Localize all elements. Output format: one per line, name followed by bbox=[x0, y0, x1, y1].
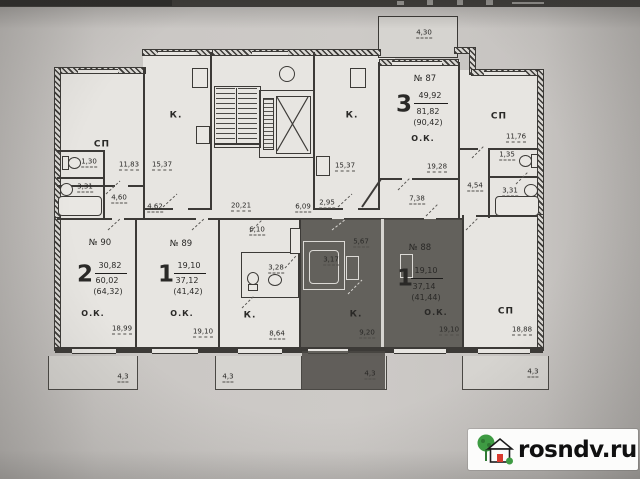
top-glyph-1 bbox=[397, 1, 404, 5]
area-ok87: 19,28 bbox=[427, 164, 447, 173]
area-bath87: 3,31 bbox=[502, 188, 518, 197]
apt90-rooms-count: 2 bbox=[77, 264, 93, 287]
room-label-sp87: СП bbox=[491, 113, 507, 122]
top-glyph-2 bbox=[427, 0, 433, 5]
top-glyph-3 bbox=[457, 0, 463, 5]
area-wc87: 1,35 bbox=[499, 152, 515, 161]
area-balcony-top: 4,30 bbox=[416, 30, 432, 39]
area-bath90: 3,31 bbox=[77, 184, 93, 193]
watermark-text: rosndv.ru bbox=[518, 437, 637, 463]
watermark: rosndv.ru bbox=[468, 429, 638, 470]
room-label-k89: К. bbox=[244, 312, 257, 321]
apt89-ok-label: О.К. bbox=[170, 310, 193, 318]
apt87-rooms-count: 3 bbox=[396, 94, 412, 117]
area-bath88: 3,17 bbox=[323, 257, 339, 266]
area-balcony-87: 4,3 bbox=[527, 369, 538, 378]
apt90-total-area: 60,02 bbox=[96, 277, 119, 285]
area-ok90: 18,99 bbox=[112, 326, 132, 335]
floorplan-photo: СП 11,83 1,30 3,31 4,60 4,62 К. 15,37 20… bbox=[0, 0, 640, 479]
area-sp90: 11,83 bbox=[119, 162, 139, 171]
apt87-fraction-bar bbox=[414, 103, 448, 104]
area-balcony-89: 4,3 bbox=[222, 374, 233, 383]
area-sp87: 11,76 bbox=[506, 134, 526, 143]
house-door-icon bbox=[497, 454, 503, 462]
area-hall87b: 7,38 bbox=[409, 196, 425, 205]
apt88-area-with-balcony: (41,44) bbox=[411, 294, 440, 302]
area-hall87: 4,54 bbox=[467, 183, 483, 192]
apt88-fraction-bar bbox=[411, 278, 443, 279]
area-wc90: 1,30 bbox=[81, 159, 97, 168]
room-label-k90: К. bbox=[170, 112, 183, 121]
apt89-fraction-bar bbox=[174, 273, 206, 274]
room-label-k87: К. bbox=[346, 112, 359, 121]
area-ok88: 19,10 bbox=[439, 327, 459, 336]
elevator-x-icon bbox=[277, 97, 308, 151]
apt88-total-area: 37,14 bbox=[413, 283, 436, 291]
apt89-area-with-balcony: (41,42) bbox=[173, 288, 202, 296]
area-corridor: 20,21 bbox=[231, 203, 251, 212]
area-k89: 8,64 bbox=[269, 331, 285, 340]
area-hall89: 6,10 bbox=[249, 227, 265, 236]
area-bath89: 3,28 bbox=[268, 265, 284, 274]
apt87-number: № 87 bbox=[414, 75, 436, 84]
apt90-fraction-bar bbox=[95, 273, 127, 274]
rosndv-logo bbox=[476, 432, 514, 468]
area-hall88: 5,67 bbox=[353, 239, 369, 248]
apt87-living-area: 49,92 bbox=[419, 92, 442, 100]
apt87-area-with-balcony: (90,42) bbox=[413, 119, 442, 127]
area-balcony-88: 4,3 bbox=[364, 371, 375, 380]
area-hall609: 6,09 bbox=[295, 204, 311, 213]
apt90-number: № 90 bbox=[89, 239, 111, 248]
area-k88: 9,20 bbox=[359, 330, 375, 339]
apt90-ok-label: О.К. bbox=[81, 310, 104, 318]
room-label-k88: К. bbox=[350, 311, 363, 320]
area-hall90: 4,60 bbox=[111, 195, 127, 204]
apt88-ok-label: О.К. bbox=[424, 309, 447, 317]
photo-top-edge-dark bbox=[0, 0, 172, 6]
top-glyph-4 bbox=[486, 0, 493, 5]
apt90-living-area: 30,82 bbox=[99, 262, 122, 270]
room-label-sp87b: СП bbox=[498, 308, 514, 317]
apt89-number: № 89 bbox=[170, 240, 192, 249]
area-ok89: 19,10 bbox=[193, 329, 213, 338]
apt88-rooms-count: 1 bbox=[397, 268, 413, 291]
apt88-living-area: 19,10 bbox=[415, 267, 438, 275]
area-k90: 15,37 bbox=[152, 162, 172, 171]
chamfer-walls bbox=[362, 179, 381, 207]
apt88-number: № 88 bbox=[409, 244, 431, 253]
area-hall295: 2,95 bbox=[319, 200, 335, 209]
room-label-sp90: СП bbox=[94, 141, 110, 150]
area-k87: 15,37 bbox=[335, 163, 355, 172]
bush-icon bbox=[506, 457, 513, 464]
apt89-rooms-count: 1 bbox=[158, 264, 174, 287]
area-balcony-90: 4,3 bbox=[117, 374, 128, 383]
top-glyph-5 bbox=[512, 2, 544, 4]
apt90-area-with-balcony: (64,32) bbox=[93, 288, 122, 296]
area-sp87b: 18,88 bbox=[512, 327, 532, 336]
apt89-living-area: 19,10 bbox=[178, 262, 201, 270]
apt89-total-area: 37,12 bbox=[176, 277, 199, 285]
area-hall90b: 4,62 bbox=[147, 204, 163, 213]
apt87-total-area: 81,82 bbox=[417, 108, 440, 116]
apt87-ok-label: О.К. bbox=[411, 135, 434, 143]
